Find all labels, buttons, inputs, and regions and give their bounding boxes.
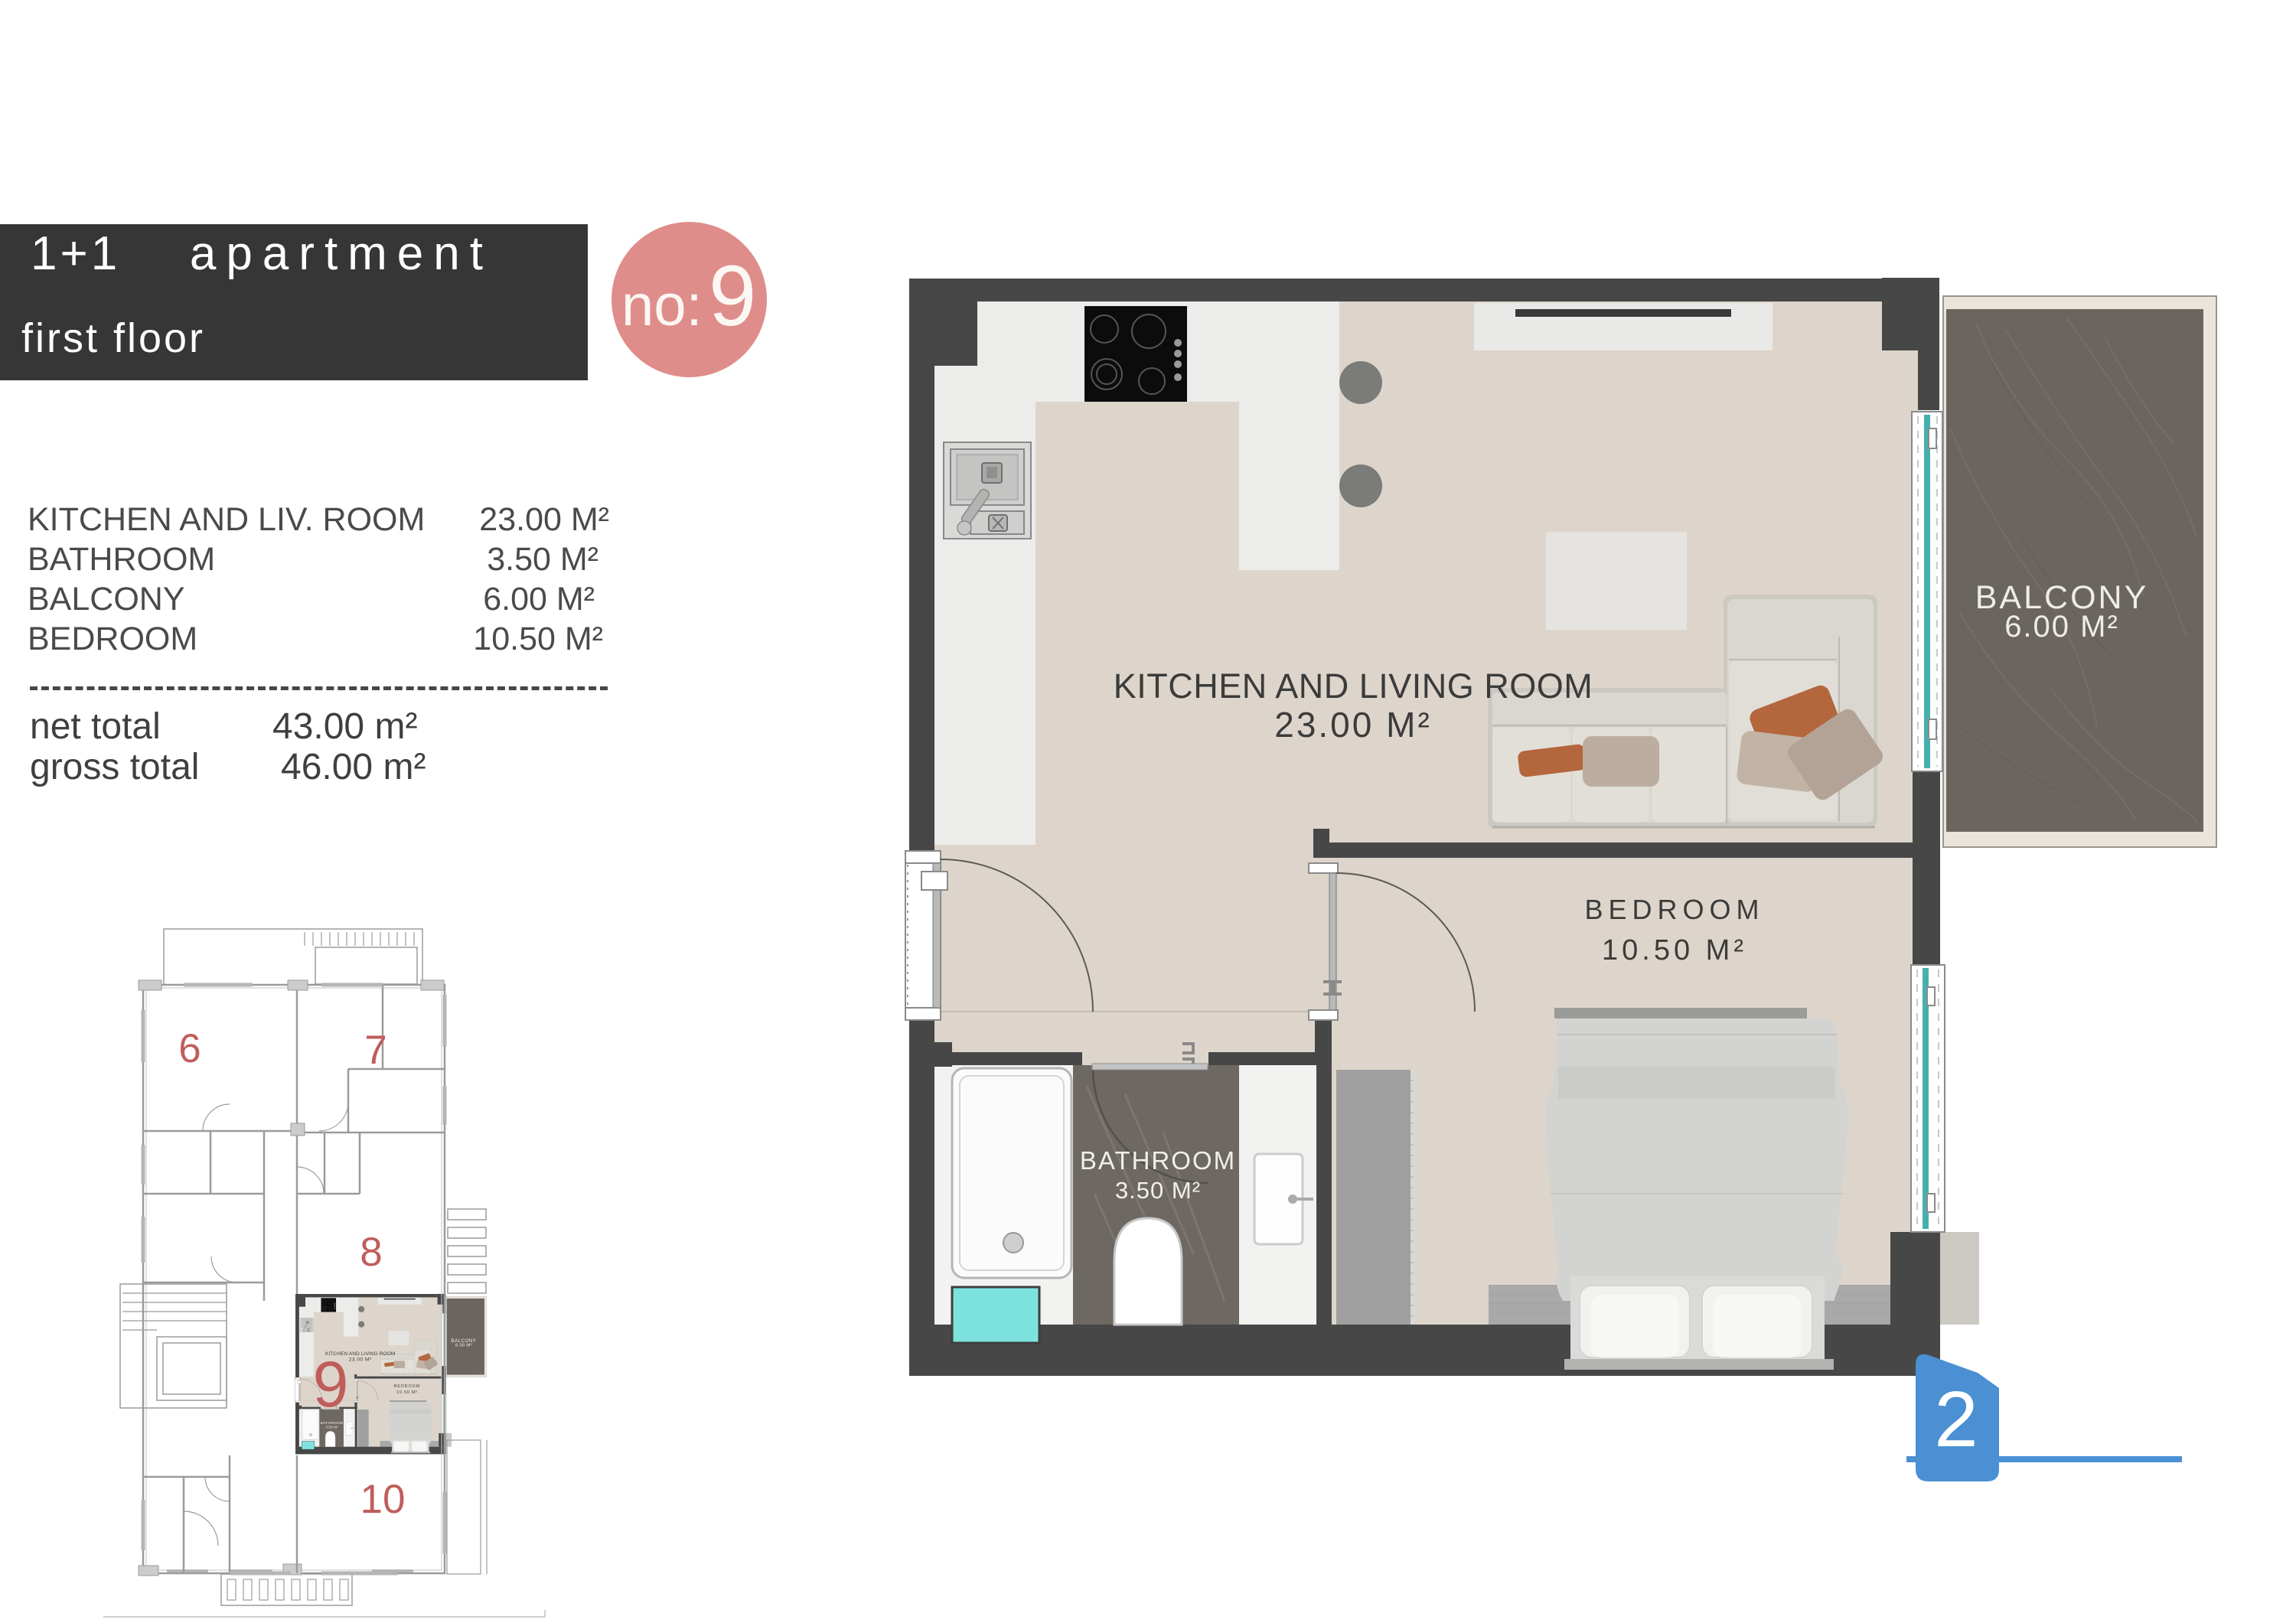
svg-text:10: 10: [360, 1477, 406, 1522]
svg-text:6: 6: [178, 1026, 201, 1071]
svg-text:8: 8: [360, 1230, 382, 1275]
svg-text:9: 9: [313, 1348, 349, 1420]
svg-text:7: 7: [364, 1028, 386, 1073]
svg-text:2: 2: [1934, 1375, 1978, 1463]
